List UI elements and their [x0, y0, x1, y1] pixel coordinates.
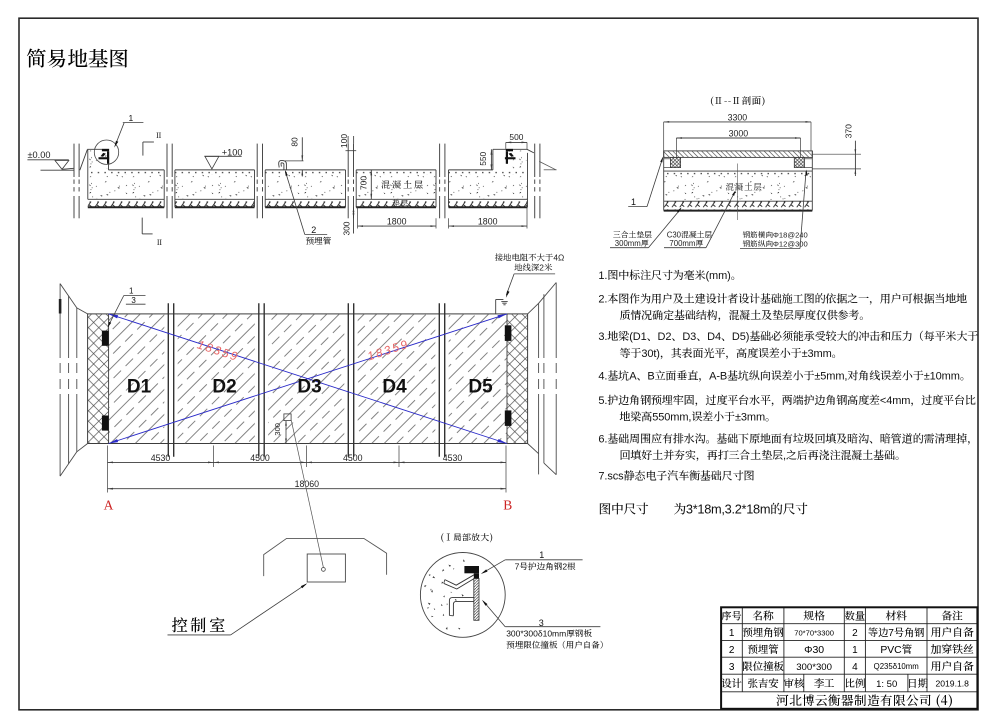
svg-text:1.图中标注尺寸为毫米(mm)。: 1.图中标注尺寸为毫米(mm)。 — [598, 267, 741, 283]
svg-text:4530: 4530 — [151, 453, 171, 463]
svg-text:4530: 4530 — [443, 453, 463, 463]
svg-text:限位撞板: 限位撞板 — [742, 658, 784, 673]
svg-text:D1: D1 — [127, 376, 152, 397]
svg-text:质情况确定基础结构，混凝土及垫层厚度仅供参考。: 质情况确定基础结构，混凝土及垫层厚度仅供参考。 — [620, 307, 871, 323]
svg-text:Q235δ10mm: Q235δ10mm — [874, 662, 919, 671]
svg-text:1: 1 — [729, 628, 735, 639]
svg-text:设计: 设计 — [721, 675, 742, 690]
svg-text:预埋管: 预埋管 — [748, 641, 779, 656]
svg-text:100: 100 — [339, 134, 349, 148]
svg-text:4500: 4500 — [343, 453, 363, 463]
svg-text:1800: 1800 — [387, 217, 407, 227]
svg-text:备注: 备注 — [941, 609, 963, 624]
svg-text:加穿铁丝: 加穿铁丝 — [930, 642, 974, 657]
svg-text:+100: +100 — [222, 147, 243, 157]
svg-text:地梁高550mm,误差小于±3mm。: 地梁高550mm,误差小于±3mm。 — [620, 409, 776, 425]
svg-text:D2: D2 — [212, 376, 236, 397]
svg-text:7.scs静态电子汽车衡基础尺寸图: 7.scs静态电子汽车衡基础尺寸图 — [598, 468, 754, 484]
svg-text:550: 550 — [478, 151, 488, 165]
svg-text:预埋限位撞板（用户自备）: 预埋限位撞板（用户自备） — [506, 639, 608, 651]
svg-text:河北博云衡器制造有限公司 (4): 河北博云衡器制造有限公司 (4) — [776, 690, 953, 709]
svg-text:用户自备: 用户自备 — [931, 659, 974, 674]
svg-text:2: 2 — [729, 645, 735, 656]
svg-text:A: A — [104, 498, 114, 513]
svg-text:用户自备: 用户自备 — [931, 625, 974, 640]
svg-text:18060: 18060 — [295, 479, 320, 489]
svg-text:张吉安: 张吉安 — [748, 675, 780, 690]
svg-text:2: 2 — [311, 225, 316, 235]
svg-text:规格: 规格 — [803, 609, 825, 624]
svg-text:4: 4 — [852, 662, 858, 673]
svg-text:比例: 比例 — [845, 675, 866, 690]
svg-text:地线深2米: 地线深2米 — [514, 262, 553, 274]
svg-text:1800: 1800 — [478, 217, 498, 227]
svg-text:材料: 材料 — [885, 609, 907, 624]
svg-text:300*300δ10mm厚钢板: 300*300δ10mm厚钢板 — [506, 627, 592, 639]
svg-text:垫层: 垫层 — [393, 198, 409, 209]
svg-text:名称: 名称 — [752, 609, 774, 624]
svg-text:回填好土并夯实，再打三合土垫层,之后再浇注混凝土基础。: 回填好土并夯实，再打三合土垫层,之后再浇注混凝土基础。 — [620, 447, 906, 463]
svg-text:2.本图作为用户及土建设计者设计基础施工图的依据之一，用户可: 2.本图作为用户及土建设计者设计基础施工图的依据之一，用户可根据当地地 — [598, 291, 968, 307]
svg-text:370: 370 — [844, 124, 854, 139]
svg-text:2019.1.8: 2019.1.8 — [935, 679, 969, 689]
svg-text:Ⅱ: Ⅱ — [155, 130, 163, 141]
svg-text:7号护边角钢2根: 7号护边角钢2根 — [515, 561, 577, 573]
svg-text:1: 1 — [852, 645, 858, 656]
svg-text:300: 300 — [341, 221, 351, 235]
svg-text:D3: D3 — [297, 376, 321, 397]
svg-text:70*70*3300: 70*70*3300 — [794, 629, 834, 638]
svg-text:D4: D4 — [382, 376, 407, 397]
svg-text:2: 2 — [852, 628, 858, 639]
svg-text:±0.00: ±0.00 — [28, 150, 51, 160]
svg-text:简易地基图: 简易地基图 — [26, 42, 129, 72]
svg-text:6.基础周围应有排水沟。基础下原地面有垃圾回填及暗沟、暗管道: 6.基础周围应有排水沟。基础下原地面有垃圾回填及暗沟、暗管道的需清理掉， — [598, 431, 978, 447]
svg-text:4500: 4500 — [250, 453, 270, 463]
svg-text:1: 1 — [129, 113, 134, 123]
svg-text:Φ30: Φ30 — [804, 644, 824, 656]
svg-text:300*300: 300*300 — [796, 662, 832, 673]
svg-text:1: 50: 1: 50 — [876, 679, 897, 690]
svg-text:PVC管: PVC管 — [880, 641, 912, 656]
svg-text:3000: 3000 — [729, 129, 749, 139]
svg-text:1: 1 — [539, 550, 544, 560]
svg-text:700: 700 — [359, 176, 369, 190]
svg-text:钢筋纵向Φ12@300: 钢筋纵向Φ12@300 — [743, 238, 808, 249]
svg-text:审核: 审核 — [784, 675, 805, 690]
svg-text:3300: 3300 — [728, 112, 748, 122]
svg-text:混凝土层: 混凝土层 — [726, 181, 763, 193]
svg-text:300: 300 — [273, 423, 282, 436]
svg-text:图中尺寸 为3*18m,3.2*18m的尺寸: 图中尺寸 为3*18m,3.2*18m的尺寸 — [598, 499, 808, 518]
svg-text:4.基坑A、B立面垂直，A-B基坑纵向误差小于±5mm,对角: 4.基坑A、B立面垂直，A-B基坑纵向误差小于±5mm,对角线误差小于±10mm… — [598, 368, 970, 384]
svg-text:控制室: 控制室 — [172, 612, 228, 636]
svg-text:数量: 数量 — [845, 608, 865, 623]
svg-text:预埋管: 预埋管 — [306, 235, 332, 247]
svg-text:3.地梁(D1、D2、D3、D4、D5)基础必须能承受较大的: 3.地梁(D1、D2、D3、D4、D5)基础必须能承受较大的冲击和压力（每平米大… — [598, 328, 978, 344]
svg-text:等于30t)，其表面光平，高度误差小于±3mm。: 等于30t)，其表面光平，高度误差小于±3mm。 — [620, 345, 843, 361]
svg-text:500: 500 — [509, 132, 523, 142]
svg-text:序号: 序号 — [721, 608, 742, 623]
svg-text:3: 3 — [131, 296, 136, 305]
svg-text:混凝土层: 混凝土层 — [381, 177, 425, 191]
svg-text:1: 1 — [129, 286, 134, 295]
svg-text:5.护边角钢预埋牢固，过度平台水平，两端护边角钢高度差<4m: 5.护边角钢预埋牢固，过度平台水平，两端护边角钢高度差<4mm，过度平台比 — [598, 392, 975, 408]
svg-text:日期: 日期 — [907, 675, 928, 690]
svg-text:李工: 李工 — [814, 675, 835, 690]
svg-text:Ⅱ: Ⅱ — [156, 237, 164, 248]
svg-text:(Ⅰ局部放大): (Ⅰ局部放大) — [440, 531, 493, 544]
svg-text:80: 80 — [290, 137, 300, 147]
svg-text:3: 3 — [729, 662, 735, 673]
svg-text:1: 1 — [631, 197, 636, 207]
svg-text:预埋角钢: 预埋角钢 — [742, 624, 784, 639]
svg-text:等边7号角钢: 等边7号角钢 — [868, 624, 925, 639]
svg-text:D5: D5 — [468, 376, 493, 397]
svg-text:(Ⅱ--Ⅱ剖面): (Ⅱ--Ⅱ剖面) — [710, 93, 766, 107]
svg-text:B: B — [503, 498, 512, 513]
